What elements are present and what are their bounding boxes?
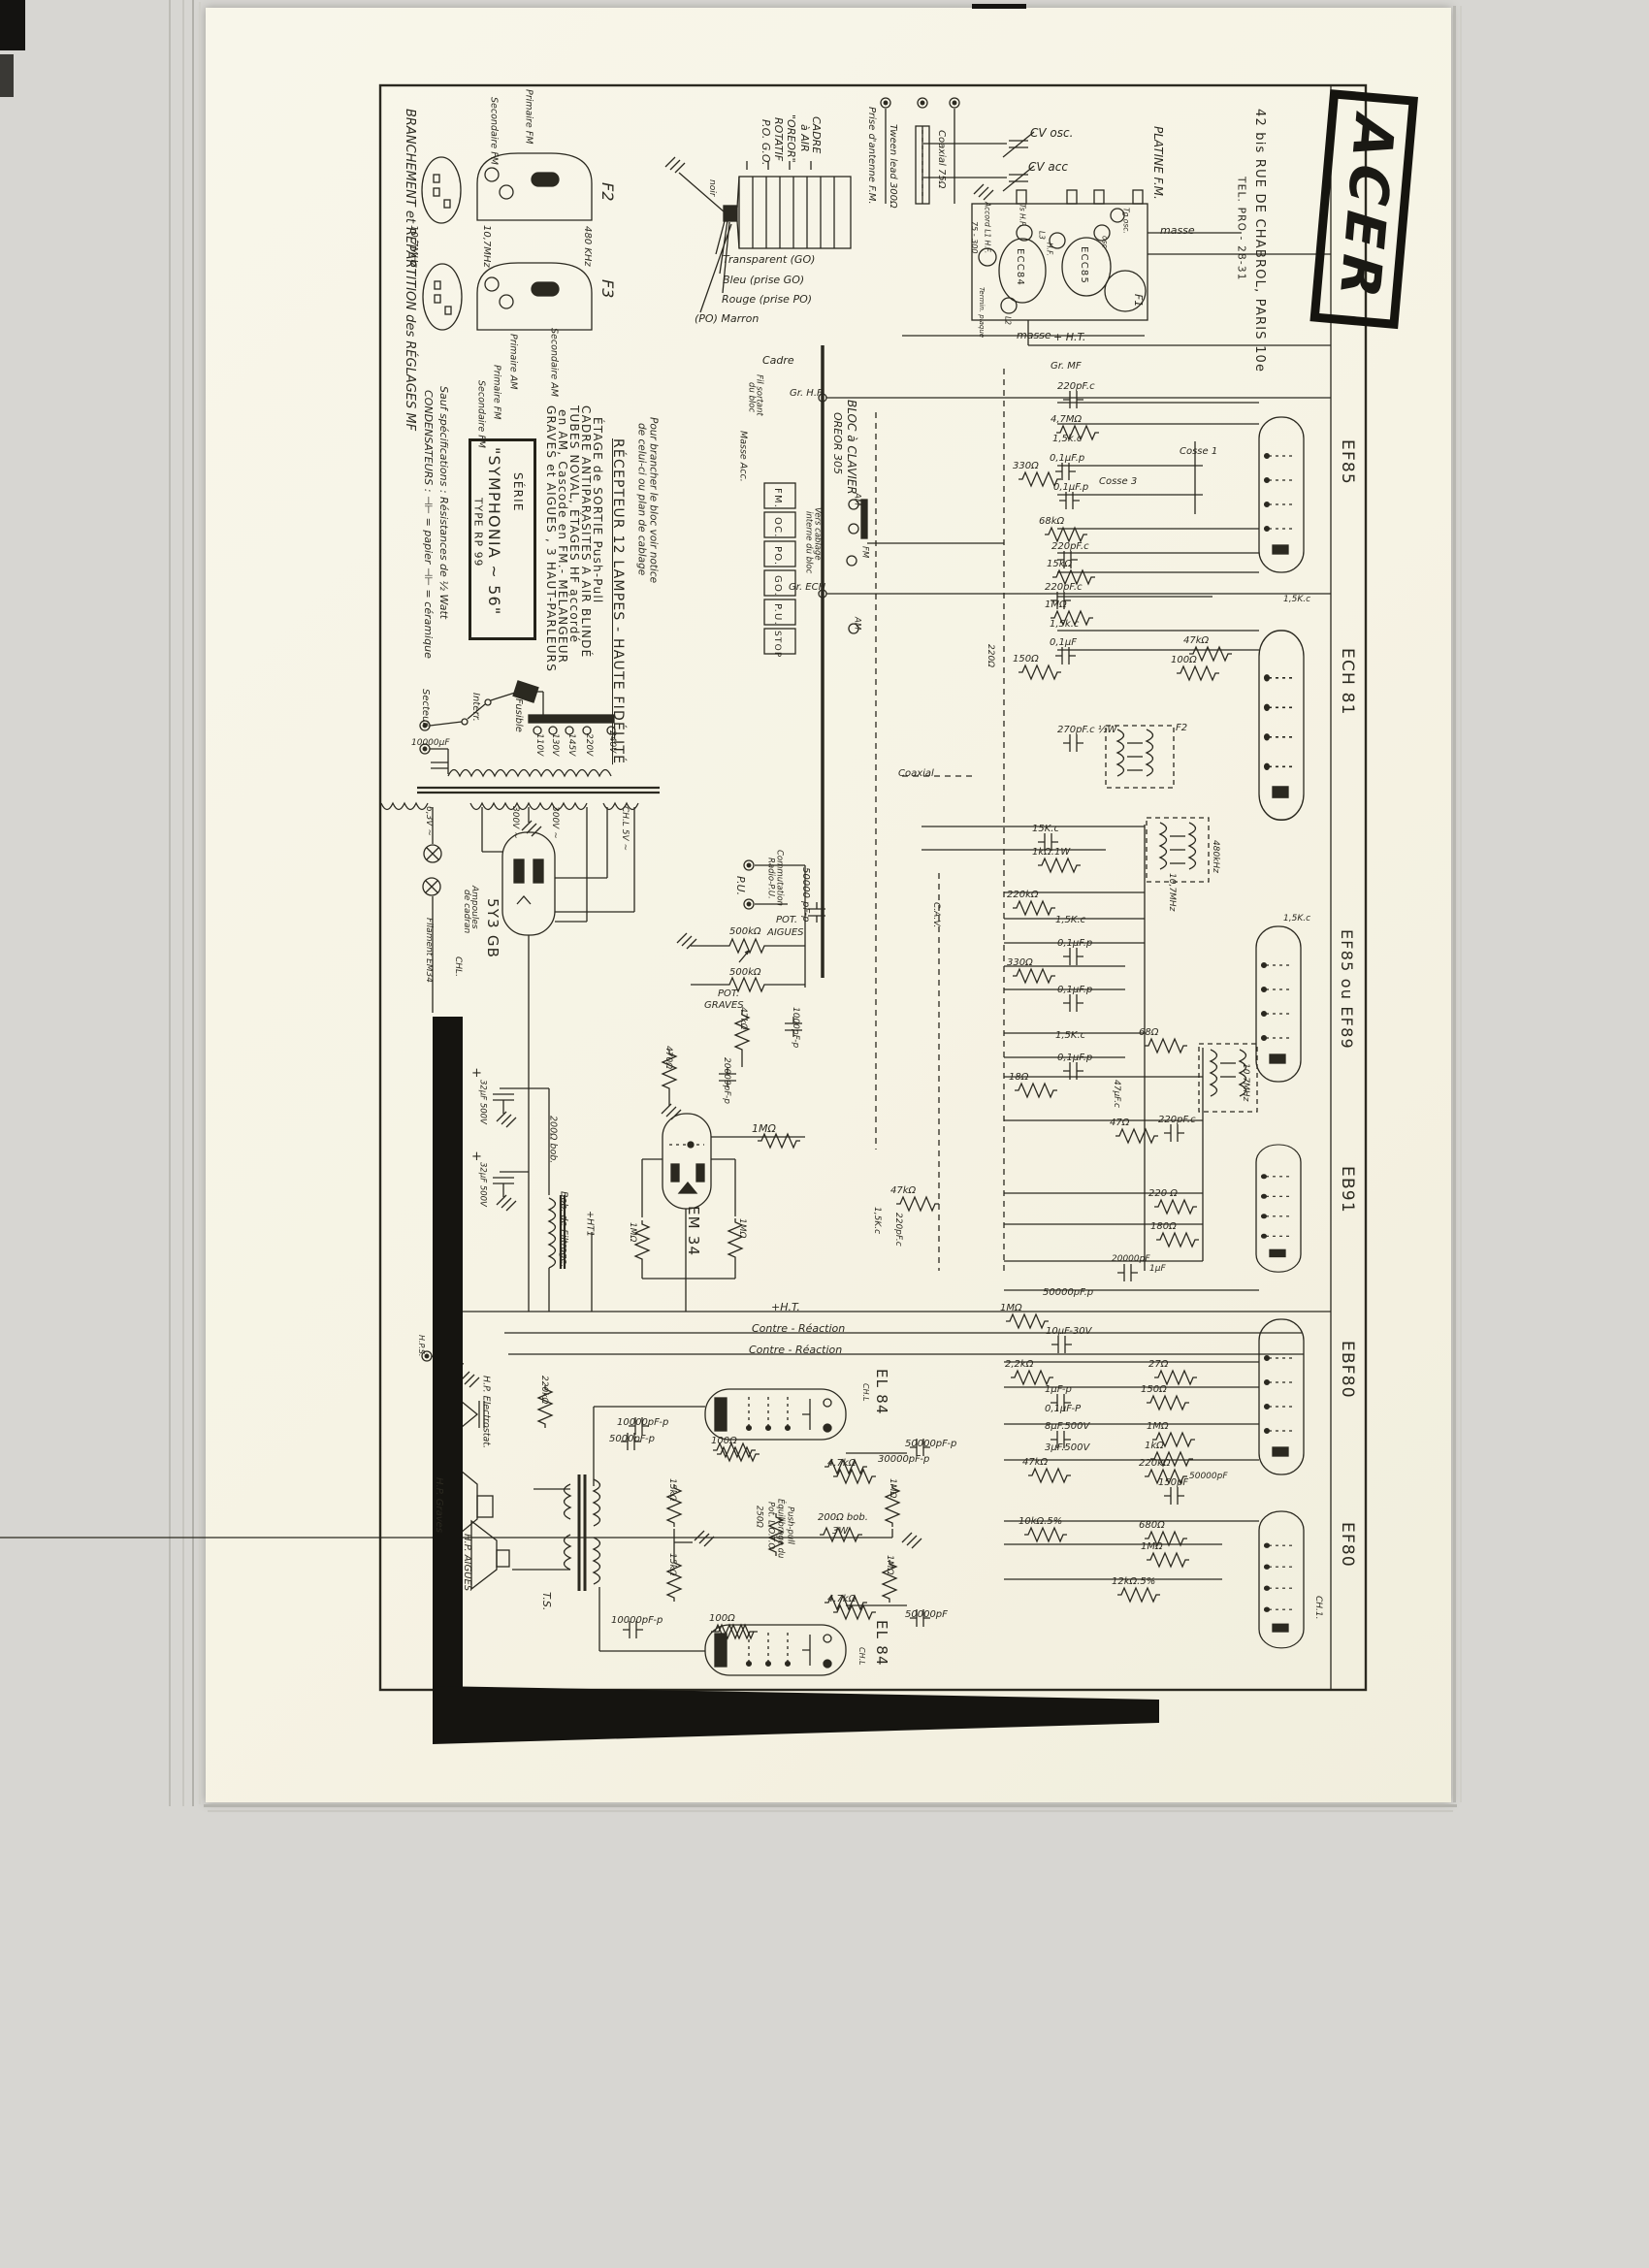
schematic-label: 220kΩ	[1139, 1459, 1171, 1469]
schematic-label: 1,5K.c	[1055, 1031, 1085, 1041]
schematic-label: 480 KHz	[582, 226, 592, 267]
schematic-label: F1	[1133, 294, 1144, 307]
schematic-label: Termin. plaque	[978, 287, 985, 338]
schematic-label: H.P. AIGUES	[462, 1534, 471, 1591]
schematic-label: ROTATIF	[773, 117, 784, 161]
schematic-label: Secondaire FM	[489, 97, 499, 165]
schematic-label: 150Ω	[1141, 1385, 1167, 1395]
page-bottom-edge	[204, 1804, 1457, 1807]
schematic-label: 32µF 500V	[478, 1162, 487, 1207]
schematic-label: 1MΩ	[628, 1222, 636, 1242]
schematic-label: 1,5k.c	[1052, 435, 1082, 444]
schematic-label: 130V	[550, 733, 559, 756]
schematic-label: Masse Acc.	[738, 431, 748, 482]
schematic-label: 10000pF-p	[611, 1616, 663, 1626]
schematic-label: noir	[707, 179, 716, 196]
schematic-label: 10,7MHz	[1241, 1063, 1249, 1101]
page-right-edge	[1460, 6, 1462, 1802]
schematic-label: CV acc	[1028, 161, 1068, 173]
schematic-label: 1kΩ.1W	[1032, 848, 1070, 858]
schematic-label: 1,5K.c	[1055, 916, 1085, 925]
schematic-label: (PO) Marron	[695, 313, 759, 324]
schematic-label: L3	[1038, 231, 1046, 240]
schematic-label: "OREOR"	[786, 114, 796, 163]
schematic-label: 220Ω	[986, 644, 994, 667]
schematic-label: 32µF 500V	[478, 1080, 487, 1124]
schematic-label: 0,1µF.p	[1057, 1053, 1092, 1063]
schematic-label: 220pF.c	[1051, 542, 1089, 552]
schematic-label: 3µF.500V	[1045, 1443, 1089, 1453]
schematic-label: 3W	[832, 1527, 848, 1537]
scan-tick-mark	[972, 4, 1026, 9]
schematic-label: Pour brancher le bloc voir notice	[648, 417, 659, 583]
schematic-label: 150Ω	[1013, 655, 1039, 664]
schematic-label: Transparent (GO)	[723, 254, 815, 265]
logo-text: ACER	[1327, 106, 1405, 312]
schematic-label: 50000pF	[905, 1610, 948, 1620]
schematic-label: 0,1µF.p	[1050, 454, 1084, 464]
schematic-label: 1MΩ	[1147, 1422, 1169, 1432]
schematic-label: F2	[599, 182, 615, 201]
schematic-label: Coaxial 75Ω	[936, 130, 946, 188]
schematic-label: 2,2kΩ	[1005, 1360, 1033, 1370]
schematic-label: Filament EM34	[424, 918, 433, 983]
schematic-label: 68Ω	[1139, 1028, 1158, 1038]
schematic-label: 1µF-p	[1045, 1385, 1072, 1395]
schematic-label: H.P. Graves	[434, 1477, 443, 1533]
schematic-label: TUBES NOVAL, ÉTAGES HF accordé	[568, 405, 580, 643]
schematic-label: AM	[853, 493, 861, 505]
schematic-label: à AIR	[799, 124, 810, 152]
schematic-label: Coaxial	[898, 769, 934, 779]
schematic-label: Push-pull	[786, 1507, 794, 1544]
schematic-label: P.U.	[772, 603, 782, 626]
schematic-label: 1MΩ	[1000, 1304, 1022, 1313]
schematic-label: Équilibrage du	[776, 1499, 785, 1558]
schematic-label: 10µF-30V	[1046, 1327, 1091, 1337]
schematic-label: 220V	[584, 733, 593, 756]
schematic-label: 220pF.c	[1045, 583, 1083, 593]
schematic-label: 50000pF.p	[1043, 1288, 1093, 1298]
schematic-label: FM	[860, 546, 869, 558]
schematic-label: Fusible	[513, 698, 523, 732]
schematic-label: 5000pF-p	[609, 1435, 655, 1444]
schematic-label: AIGUES	[767, 928, 804, 938]
schematic-label: 47kΩ	[890, 1186, 916, 1196]
schematic-label: C.A.V.	[931, 902, 940, 927]
schematic-label: GRAVES et AIGUES , 3 HAUT-PARLEURS	[545, 405, 557, 672]
schematic-label: CH.L	[857, 1647, 865, 1666]
page-stack-edge	[192, 0, 194, 1806]
schematic-label: Cosse 3	[1099, 477, 1137, 487]
schematic-label: Secondaire AM	[549, 328, 559, 397]
schematic-label: en AM, Cascode en FM.- MÉLANGEUR	[557, 409, 568, 664]
schematic-label: 180Ω	[1150, 1222, 1177, 1232]
schematic-label: 50000pF	[1189, 1473, 1228, 1481]
schematic-label: 15kΩ	[667, 1553, 676, 1576]
schematic-label: +H.T.	[771, 1302, 800, 1312]
schematic-label: 0,1µF.p	[1053, 483, 1088, 493]
schematic-label: PO.	[772, 546, 782, 566]
schematic-label: 30000pF-p	[878, 1455, 929, 1465]
schematic-label: 1,5K.c	[1283, 596, 1310, 604]
schematic-label: Tween lead 300Ω	[888, 124, 897, 209]
schematic-label: 100Ω	[1171, 656, 1197, 665]
schematic-label: 5Y3 GB	[485, 898, 500, 958]
publisher-phone: TEL. PRO - 28-31	[1236, 177, 1246, 281]
schematic-label: POT.	[776, 916, 797, 925]
schematic-label: STOP	[772, 631, 781, 659]
schematic-label: 500kΩ	[729, 968, 761, 978]
schematic-label: Bob. de Filtrage.	[559, 1191, 568, 1267]
schematic-label: GO.	[772, 575, 782, 597]
schematic-label: EBF80	[1339, 1341, 1355, 1399]
schematic-label: Secondaire FM	[476, 380, 486, 448]
schematic-label: Interr.	[470, 693, 480, 722]
schematic-label: Primaire AM	[508, 334, 518, 389]
page-right-edge	[1453, 6, 1456, 1802]
schematic-label: 18Ω	[1009, 1073, 1028, 1083]
schematic-label: 47kΩ	[1022, 1458, 1048, 1468]
schematic-label: 270pF.c ½W	[1057, 726, 1116, 735]
schematic-label: H.P. Electrostat.	[481, 1376, 491, 1448]
schematic-label: EF85 ou EF89	[1339, 929, 1354, 1050]
schematic-label: Prise d'antenne F.M.	[866, 107, 876, 205]
schematic-label: 15kΩ	[667, 1478, 676, 1502]
schematic-label: CH.L	[861, 1383, 869, 1402]
schematic-label: Ts H.F.	[1018, 204, 1026, 227]
schematic-label: 15kΩ	[1047, 560, 1072, 569]
schematic-label: Primaire FM	[492, 365, 501, 419]
schematic-label: masse	[1017, 330, 1051, 340]
schematic-label: Contre - Réaction	[752, 1323, 845, 1334]
schematic-label: FM.	[772, 488, 782, 508]
schematic-label: H.F.	[1046, 243, 1053, 256]
schematic-label: 110V	[534, 733, 543, 756]
schematic-label: 145V	[566, 733, 575, 756]
schematic-label: 300V ~	[510, 806, 519, 839]
schematic-label: 10,7MHz	[481, 225, 491, 268]
schematic-label: 100Ω	[711, 1437, 737, 1446]
schematic-label: ECH 81	[1339, 648, 1355, 716]
scan-corner-mark	[0, 54, 14, 97]
schematic-label: 240V	[607, 730, 616, 753]
page-stack-edge	[199, 2, 201, 1804]
schematic-label: Vers cablage	[813, 507, 822, 561]
schematic-label: 27Ω	[1148, 1360, 1168, 1370]
schematic-label: 0,1µF	[1050, 638, 1077, 648]
schematic-label: EL 84	[874, 1369, 889, 1415]
schematic-label: PLATINE F.M.	[1152, 126, 1164, 200]
schematic-label: 50000pF-p	[905, 1440, 956, 1449]
schematic-label: 20000pF	[1112, 1255, 1150, 1264]
schematic-label: 220pF.c	[893, 1213, 902, 1247]
schematic-label: 250Ω	[755, 1506, 763, 1528]
schematic-label: 10000pF-p	[617, 1418, 668, 1428]
schematic-label: CHL.	[453, 956, 462, 977]
schematic-label: interne du bloc	[804, 511, 813, 573]
publisher-address: 42 bis RUE DE CHABROL, PARIS 10e	[1253, 109, 1266, 373]
schematic-label: 12kΩ.5%	[1112, 1577, 1155, 1587]
schematic-label: POT.	[718, 989, 739, 999]
schematic-label: 1,5K.c	[1283, 915, 1310, 923]
schematic-label: 8µF.500V	[1045, 1422, 1089, 1432]
schematic-label: 1MΩ	[1045, 600, 1067, 610]
schematic-label: 0,1µF.p	[1057, 939, 1092, 949]
schematic-label: 300V ~	[550, 806, 559, 839]
schematic-label: 47kΩ	[1183, 636, 1209, 646]
schematic-label: CADRE ANTIPARASITES A AIR BLINDÉ	[580, 405, 592, 658]
schematic-label: du bloc	[747, 382, 756, 412]
schematic-label: ECC84	[1015, 248, 1024, 286]
schematic-label: 0,1µF.p	[1057, 986, 1092, 995]
schematic-label: BLOC à CLAVIER	[846, 400, 857, 495]
page-stack-edge	[182, 0, 184, 1806]
schematic-label: + H.T.	[1053, 332, 1085, 342]
schematic-label: 47kΩ	[738, 1007, 747, 1030]
schematic-label: +	[471, 1067, 482, 1080]
schematic-label: EB91	[1339, 1166, 1355, 1214]
scanned-page: BRANCHEMENT et RÉPARTITION des RÉGLAGES …	[0, 0, 1649, 2268]
schematic-label: 47Ω	[1110, 1118, 1129, 1128]
series-label: SÉRIE	[512, 472, 524, 512]
schematic-label: Bleu (prise GO)	[723, 275, 804, 285]
schematic-label: 10,7MHz	[408, 225, 418, 268]
schematic-label: 1,5K.c	[872, 1207, 881, 1234]
schematic-label: 220 Ω	[1148, 1189, 1178, 1199]
page-bottom-edge	[208, 1810, 1453, 1812]
schematic-label: 1000pF-p	[791, 1007, 799, 1048]
schematic-label: 75 - 300	[970, 221, 978, 253]
schematic-label: L2	[1004, 316, 1012, 325]
schematic-label: ÉTAGE de SORTIE Push-Pull	[592, 417, 603, 603]
schematic-label: 68kΩ	[1039, 517, 1064, 527]
schematic-label: 10kΩ.5%	[1018, 1517, 1062, 1527]
schematic-label: P.O. G.O.	[760, 119, 771, 166]
schematic-label: 1,5k.c	[1050, 620, 1079, 630]
schematic-label: 220pF.c	[1057, 382, 1095, 392]
schematic-label: H.P.S.	[417, 1335, 425, 1356]
schematic-label: 330Ω	[1013, 462, 1039, 471]
schematic-label: Gr. ECH	[789, 583, 825, 593]
schematic-label: 47µF.c	[1112, 1080, 1120, 1108]
schematic-label: CONDENSATEURS : ⊣⊢ = papier ⊣⊢ = céramiq…	[423, 390, 434, 659]
schematic-label: 50000 pF-p	[800, 867, 810, 923]
schematic-label: Pot. L.O.T.O	[766, 1502, 775, 1549]
schematic-label: +HT1	[585, 1211, 595, 1237]
schematic-label: 20000pF-p	[722, 1057, 730, 1104]
schematic-label: 6,3V ~	[424, 806, 433, 836]
schematic-label: 470Ω	[663, 1046, 672, 1069]
page-stack-edge	[169, 0, 171, 1806]
schematic-label: 4,7kΩ	[827, 1595, 856, 1604]
schematic-label: 480kHz	[1211, 840, 1219, 873]
schematic-label: 1MΩ	[1141, 1542, 1163, 1552]
schematic-label: 220pF.c	[1158, 1116, 1196, 1125]
schematic-label: 1MΩ	[737, 1218, 746, 1238]
model-series-box: SÉRIE "SYMPHONIA ~ 56" TYPE RP 99	[469, 438, 536, 640]
schematic-label: Commutation	[775, 850, 784, 906]
schematic-label: 0,1µF-P	[1045, 1405, 1081, 1414]
schematic-label: Secteur	[420, 689, 430, 727]
schematic-label: OREOR 305	[832, 412, 843, 474]
schematic-label: CADRE	[811, 116, 822, 153]
schematic-label: 4,7MΩ	[1051, 415, 1082, 425]
model-name: "SYMPHONIA ~ 56"	[486, 447, 501, 616]
schematic-label: Sauf spécifications : Résistances de ½ W…	[438, 386, 449, 619]
schematic-label: Gr. MF	[1051, 362, 1082, 372]
schematic-label: CV osc.	[1030, 127, 1073, 139]
schematic-label: Rouge (prise PO)	[722, 294, 812, 305]
schematic-label: Tg osc.	[1122, 208, 1130, 234]
schematic-label: 330Ω	[1007, 958, 1033, 968]
schematic-label: EL 84	[874, 1620, 889, 1667]
schematic-label: ECC85	[1079, 246, 1088, 284]
schematic-label: 200Ω bob.	[548, 1116, 558, 1163]
schematic-label: BRANCHEMENT et RÉPARTITION des RÉGLAGES …	[404, 109, 416, 431]
schematic-label: Cosse 1	[1180, 447, 1217, 457]
schematic-label: EM 34	[686, 1206, 700, 1256]
schematic-label: 220kΩ	[1007, 891, 1039, 900]
schematic-label: 1kΩ	[1145, 1442, 1164, 1451]
schematic-label: 200Ω bob.	[818, 1513, 868, 1523]
schematic-label: 15K.c	[1032, 825, 1059, 834]
schematic-label: RÉCEPTEUR 12 LAMPES - HAUTE FIDÉLITÉ	[611, 438, 625, 764]
schematic-label: Accord L1 H.F.	[984, 202, 991, 253]
schematic-label: 1µF	[1149, 1265, 1166, 1274]
schematic-label: Contre - Réaction	[749, 1345, 842, 1355]
schematic-label: F2	[1176, 724, 1187, 733]
schematic-label: 10000µF	[411, 739, 450, 748]
schematic-label: osc	[1101, 236, 1109, 248]
schematic-label: Gr. H.F.	[790, 389, 824, 399]
schematic-label: de cadran	[462, 890, 470, 933]
schematic-label: CH.1.	[1313, 1596, 1322, 1620]
schematic-label: OC.	[772, 517, 782, 538]
schematic-label: Cadre	[762, 355, 794, 366]
schematic-label: F3	[599, 279, 615, 298]
schematic-label: 1MΩ	[752, 1123, 776, 1134]
schematic-label: 220kΩ	[539, 1376, 548, 1404]
schematic-label: 100Ω	[709, 1614, 735, 1624]
scan-corner-mark	[0, 0, 25, 50]
schematic-label: EF85	[1339, 439, 1355, 485]
schematic-label: AM	[853, 617, 861, 630]
schematic-label: 150pF	[1158, 1478, 1188, 1488]
schematic-label: CH.L 5V ~	[620, 806, 629, 851]
schematic-label: EF80	[1339, 1522, 1355, 1568]
schematic-label: 1MΩ	[885, 1555, 893, 1574]
model-type: TYPE RP 99	[472, 498, 483, 567]
schematic-label: P.U.	[735, 876, 746, 895]
schematic-label: 500kΩ	[729, 927, 761, 937]
schematic-label: 1MΩ	[888, 1478, 896, 1498]
schematic-label: Primaire FM	[524, 89, 533, 144]
schematic-label: 4,7kΩ	[827, 1459, 856, 1469]
schematic-label: 680Ω	[1139, 1521, 1165, 1531]
schematic-label: masse	[1160, 225, 1195, 236]
schematic-label: de celui-ci ou plan de cablage	[636, 423, 647, 575]
schematic-label: T.S.	[541, 1592, 552, 1610]
schematic-label: Radio-P.U.	[766, 858, 775, 899]
schematic-label: 10,7MHz	[1167, 873, 1176, 911]
